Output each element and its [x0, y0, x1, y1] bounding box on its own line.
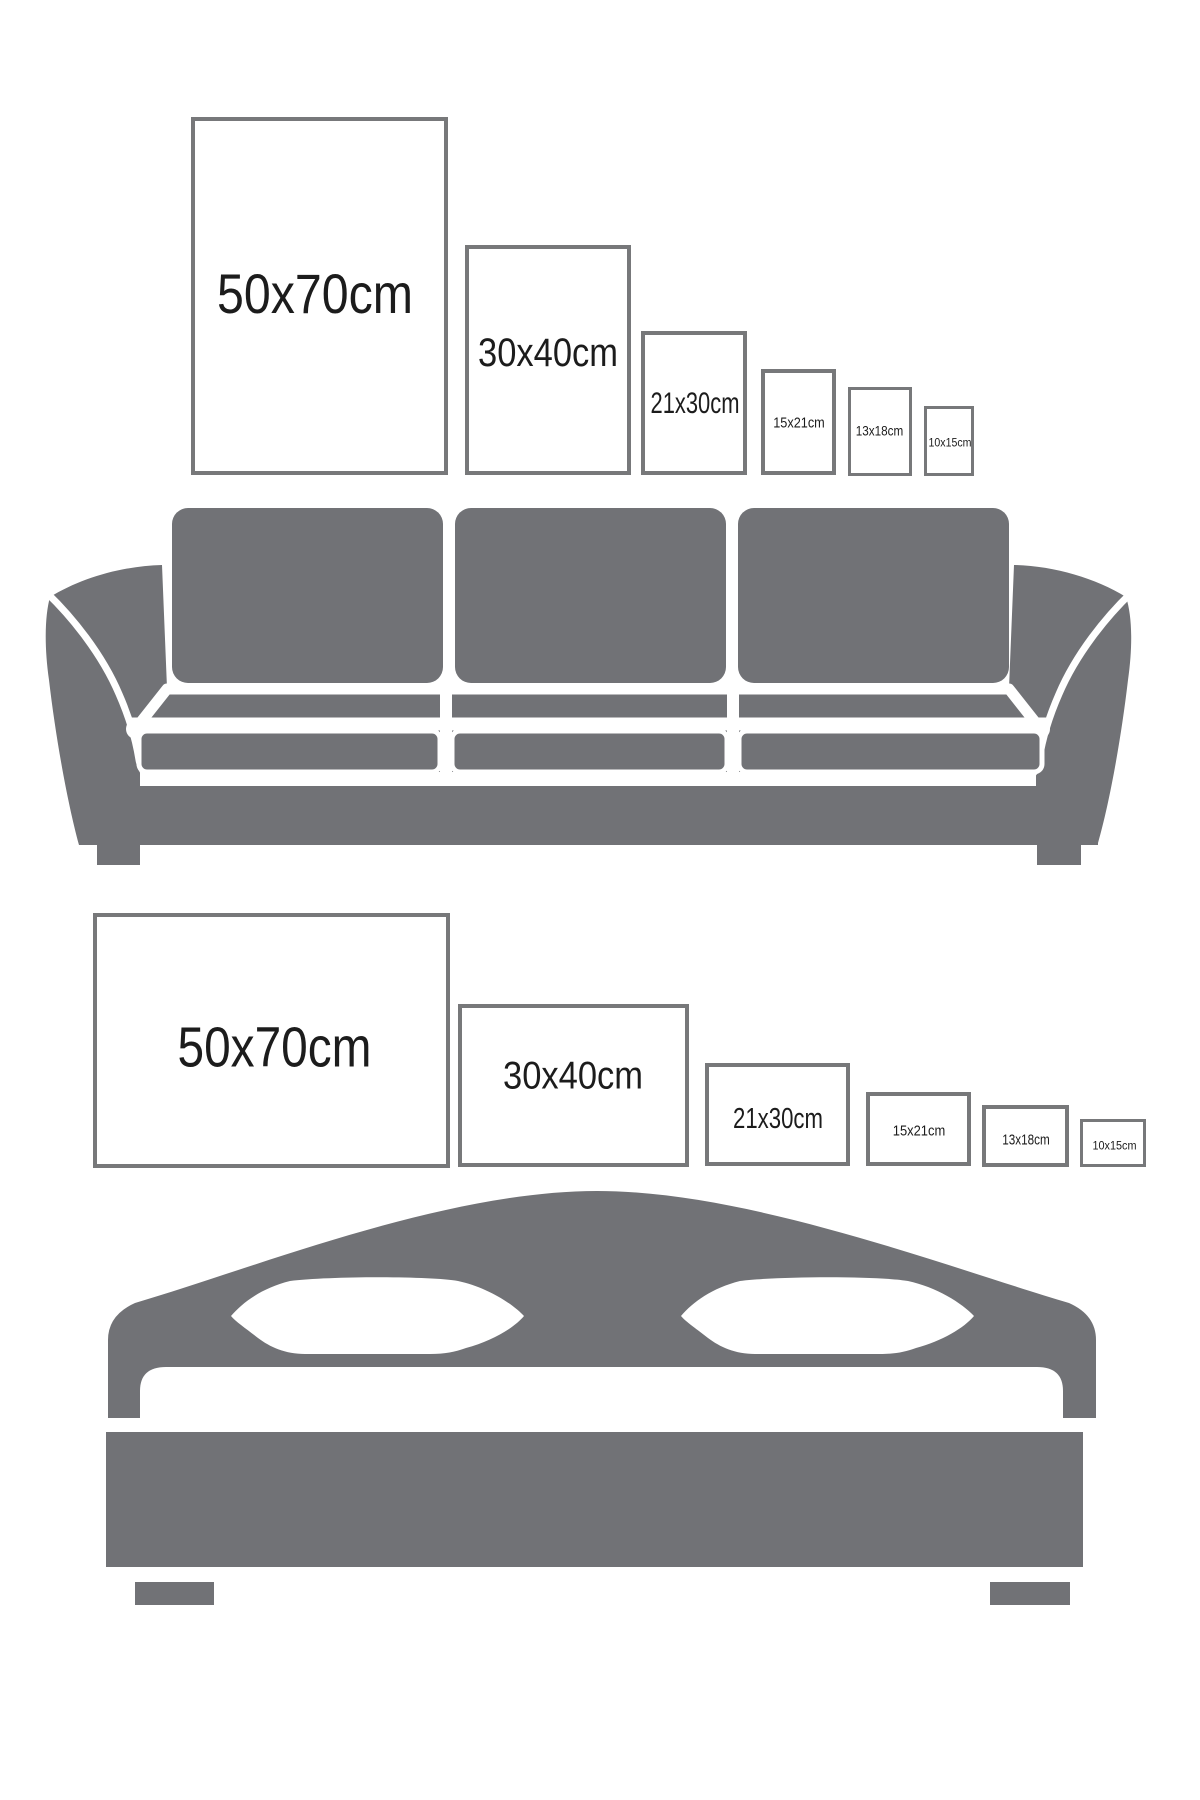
svg-text:13x18cm: 13x18cm — [1002, 1133, 1050, 1149]
svg-text:13x18cm: 13x18cm — [856, 423, 904, 439]
svg-text:15x21cm: 15x21cm — [773, 416, 825, 432]
svg-text:50x70cm: 50x70cm — [217, 262, 413, 325]
svg-text:21x30cm: 21x30cm — [651, 387, 740, 420]
svg-text:30x40cm: 30x40cm — [503, 1055, 643, 1098]
svg-text:10x15cm: 10x15cm — [929, 436, 972, 450]
svg-text:30x40cm: 30x40cm — [478, 331, 618, 375]
svg-text:15x21cm: 15x21cm — [893, 1124, 946, 1140]
svg-text:50x70cm: 50x70cm — [178, 1016, 372, 1080]
svg-text:10x15cm: 10x15cm — [1093, 1139, 1137, 1153]
svg-text:21x30cm: 21x30cm — [733, 1103, 823, 1135]
